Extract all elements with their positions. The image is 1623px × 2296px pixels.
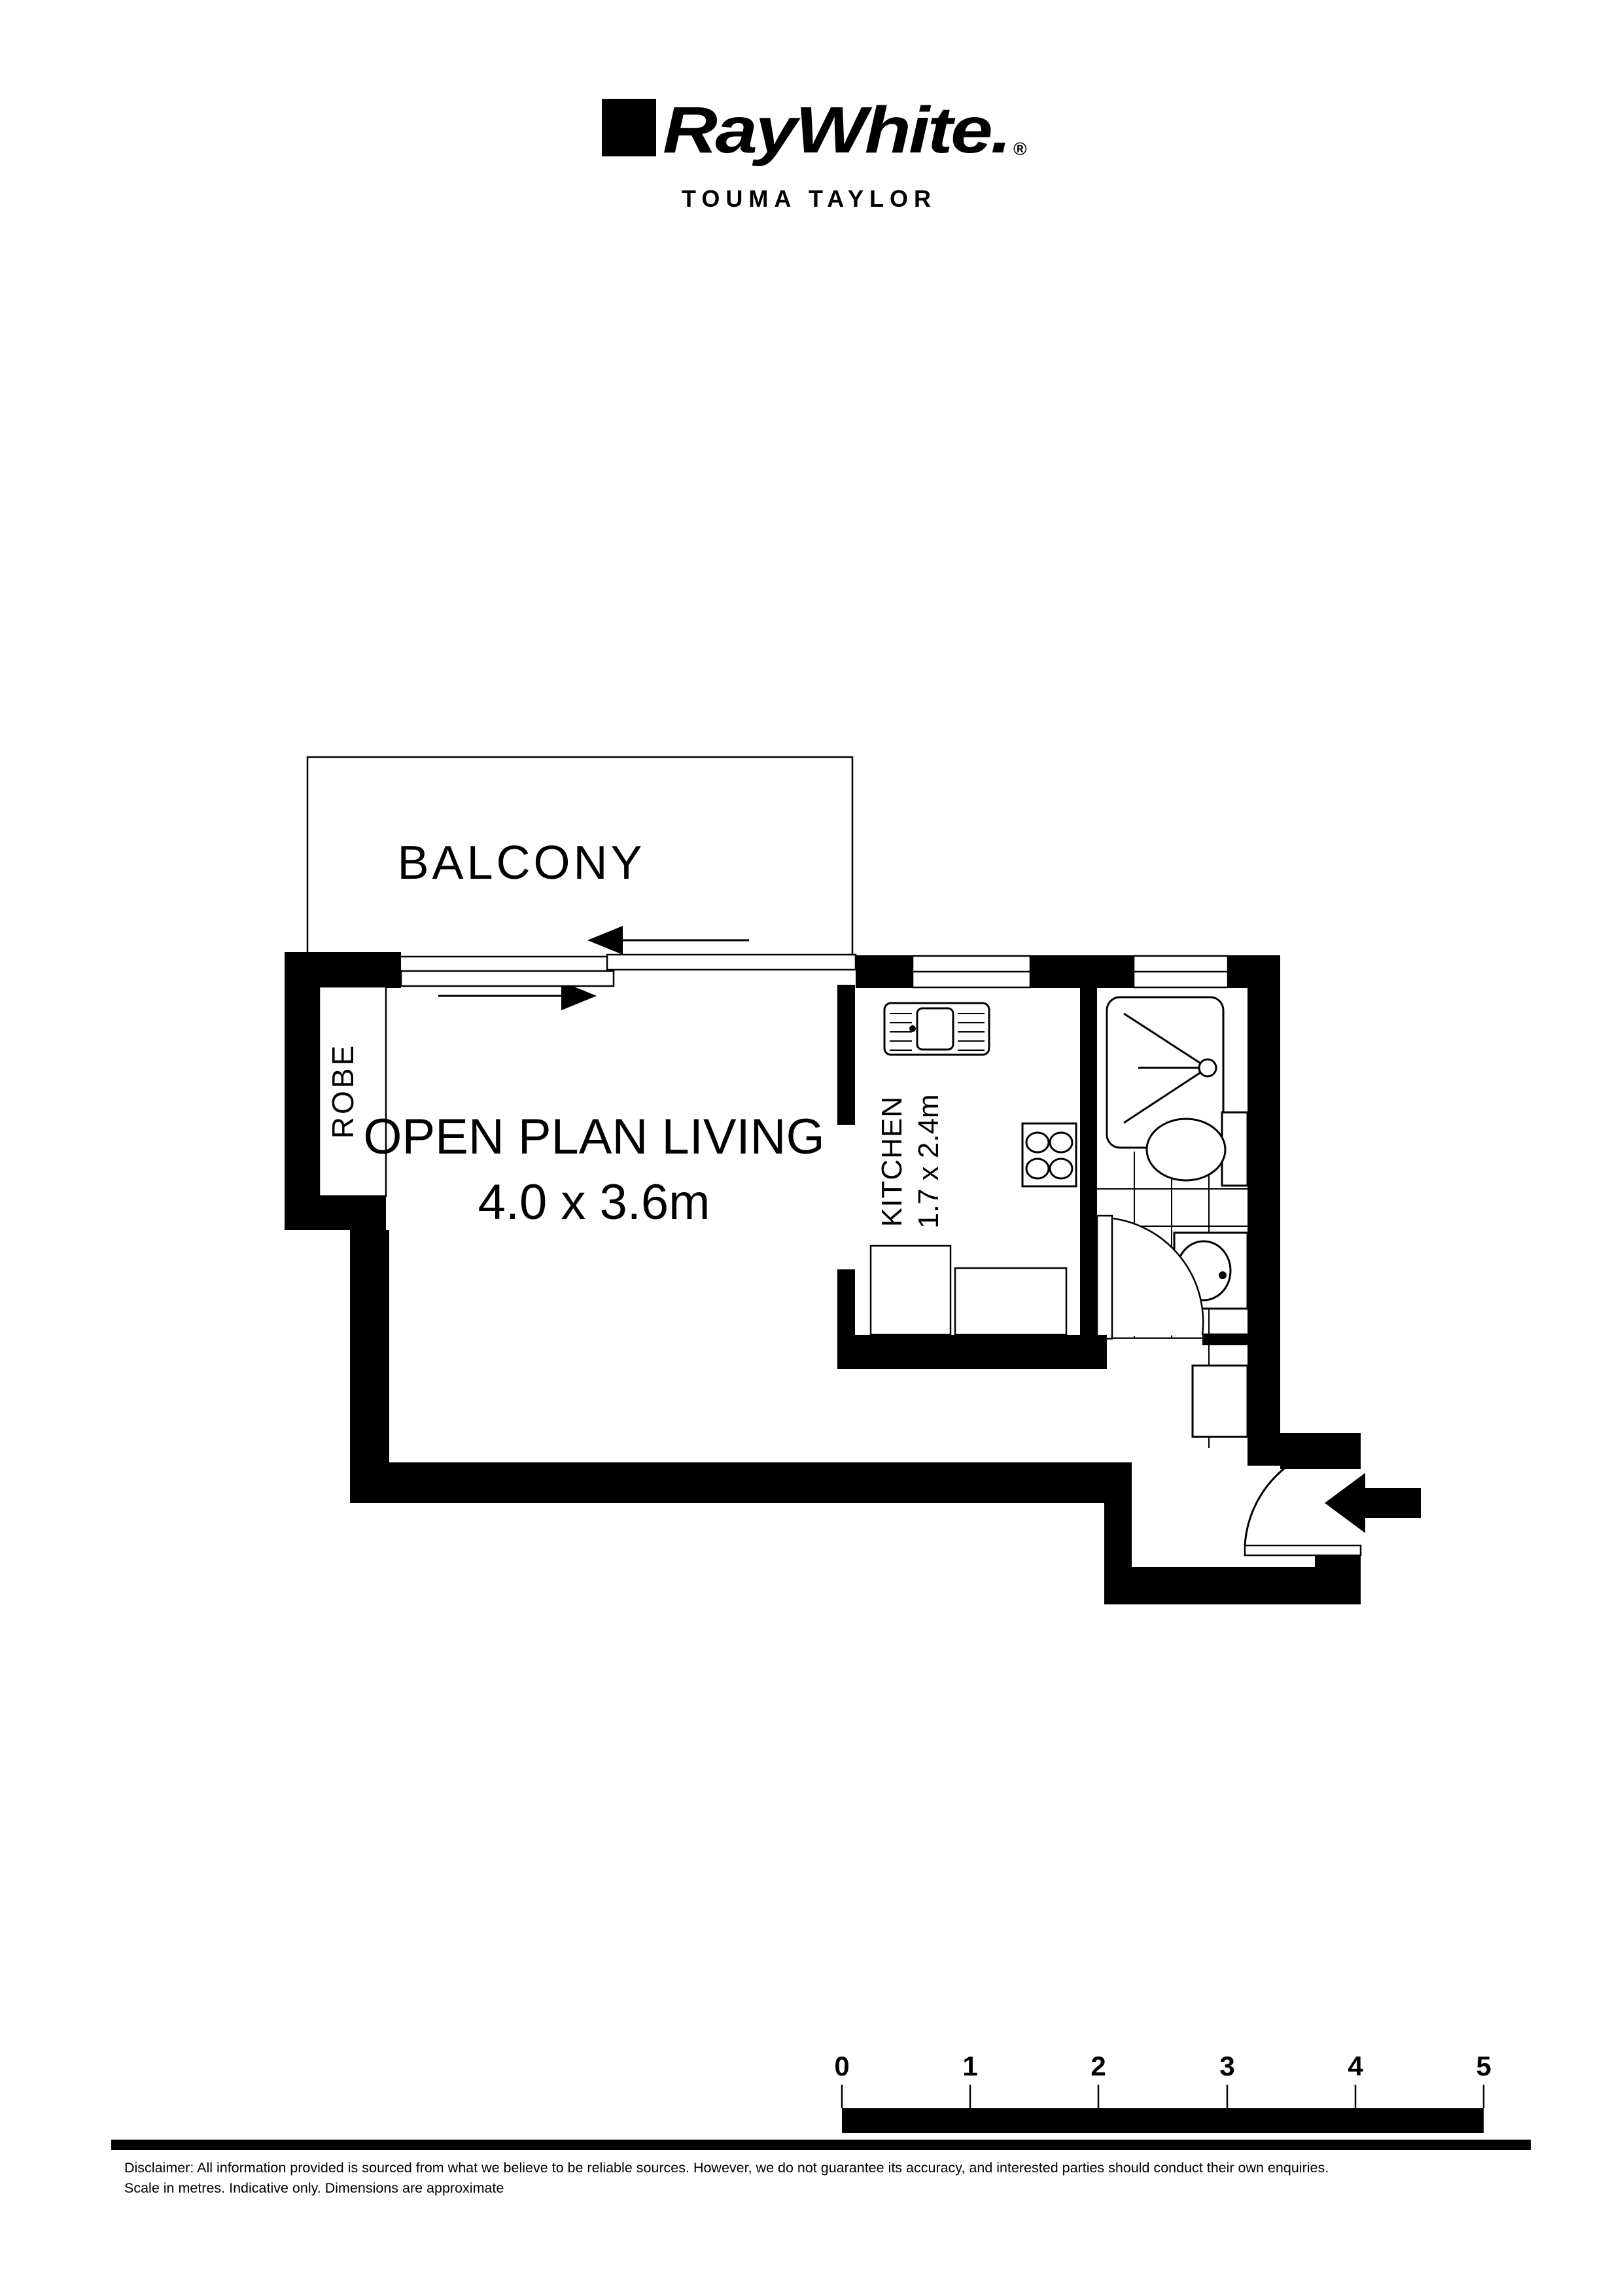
wall-left-step (285, 1196, 386, 1230)
balcony-label: BALCONY (397, 837, 645, 889)
disclaimer-line1: Disclaimer: All information provided is … (124, 2160, 1329, 2176)
kitchen-room: KITCHEN 1.7 x 2.4m (871, 1003, 1076, 1335)
kitchen-label: KITCHEN (876, 1096, 908, 1227)
wall-entry-south (1104, 1567, 1361, 1604)
living-room: OPEN PLAN LIVING 4.0 x 3.6m (363, 1109, 824, 1230)
scale-label-2: 2 (1091, 2051, 1106, 2081)
scale-bar: 0 1 2 3 4 5 (834, 2051, 1491, 2133)
wall-entry-step (1315, 1555, 1361, 1567)
wall-left-lower (350, 1230, 389, 1462)
floorplan-canvas: RayWhite. ® TOUMA TAYLOR BALCONY (0, 0, 1623, 2296)
kitchen-window (913, 956, 1030, 987)
bathroom-room (1097, 997, 1248, 1448)
entry-door-leaf (1245, 1545, 1361, 1555)
scale-label-3: 3 (1219, 2051, 1234, 2081)
sliding-door-leaf-upper (607, 955, 856, 970)
disclaimer-line2: Scale in metres. Indicative only. Dimens… (124, 2180, 504, 2196)
wall-top-mid (856, 955, 913, 988)
wall-living-south (350, 1462, 1132, 1503)
wall-kitchen-west-lower (837, 1269, 855, 1335)
scale-bar-solid (842, 2108, 1484, 2133)
scale-label-1: 1 (962, 2051, 977, 2081)
kitchen-counter-left (871, 1246, 951, 1335)
robe-label: ROBE (326, 1043, 360, 1139)
wall-kitchen-bath-divider (1080, 988, 1097, 1335)
floorplan-page: RayWhite. ® TOUMA TAYLOR BALCONY (0, 0, 1623, 2296)
wall-top-kitchen-bath (1030, 955, 1134, 988)
wall-bath-south-stub (1202, 1333, 1249, 1345)
brand-logo: RayWhite. ® TOUMA TAYLOR (602, 94, 1027, 212)
kitchen-sink-icon (884, 1003, 989, 1055)
scale-label-5: 5 (1476, 2051, 1491, 2081)
living-dimensions: 4.0 x 3.6m (478, 1174, 710, 1230)
footer-divider (111, 2140, 1531, 2150)
brand-logo-square-icon (602, 99, 656, 156)
wall-right (1248, 955, 1280, 1466)
brand-logo-text: RayWhite. (663, 94, 1009, 167)
wall-left-upper (285, 952, 319, 1230)
wall-kitchen-south (837, 1335, 1107, 1369)
wall-entry-west (1104, 1503, 1132, 1567)
office-name: TOUMA TAYLOR (682, 185, 937, 212)
kitchen-dimensions: 1.7 x 2.4m (913, 1094, 945, 1228)
living-label: OPEN PLAN LIVING (363, 1109, 824, 1165)
registered-mark-icon: ® (1013, 139, 1027, 159)
bathroom-window (1134, 956, 1228, 987)
kitchen-counter-right (955, 1268, 1066, 1335)
cooktop-icon (1022, 1123, 1076, 1186)
entry-arrow-icon (1325, 1473, 1421, 1533)
scale-ticks (842, 2085, 1484, 2108)
sliding-door-leaf-lower (401, 971, 614, 986)
robe-closet: ROBE (319, 987, 386, 1196)
bathroom-cabinet (1193, 1366, 1248, 1437)
scale-label-4: 4 (1348, 2051, 1363, 2081)
scale-label-0: 0 (834, 2051, 849, 2081)
wall-kitchen-west-upper (837, 985, 855, 1125)
bathroom-door-leaf (1097, 1216, 1112, 1339)
